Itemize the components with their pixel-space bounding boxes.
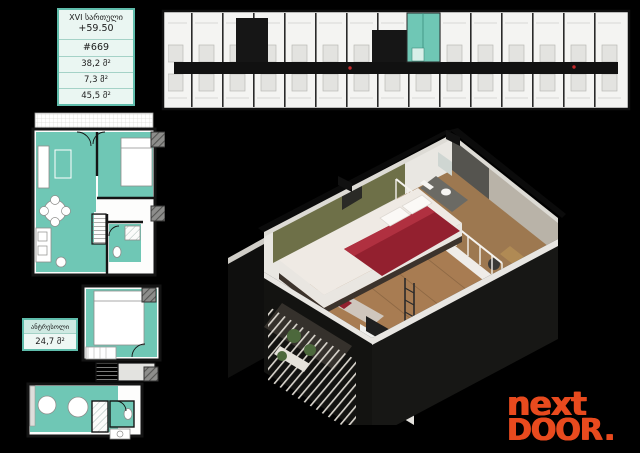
mezzanine-floor-plan	[20, 283, 165, 448]
apartment-3d-render	[222, 118, 578, 425]
poster-canvas: XVI სართული +59.50 #669 38,2 მ² 7,3 მ² 4…	[0, 0, 640, 453]
stair-core-2	[372, 30, 410, 62]
mezzanine-area: 24,7 მ²	[24, 333, 76, 349]
stair-core-1	[236, 18, 268, 62]
left-outer-wall	[228, 238, 264, 378]
bed	[121, 138, 152, 186]
main-floor-plan	[25, 110, 165, 285]
logo-door-text: DOOR	[507, 413, 602, 448]
mezz-rail-strip	[86, 347, 116, 359]
corridor-marker-dot	[348, 66, 351, 69]
area-value-1: 38,2 მ²	[59, 56, 133, 72]
shaft-1	[151, 132, 165, 147]
toilet-3d	[441, 189, 451, 196]
mezzanine-title: ანტრესოლი	[24, 320, 76, 333]
mezz-shaft-2	[144, 367, 158, 381]
highlighted-unit	[407, 13, 440, 62]
unit-number: #669	[59, 39, 133, 56]
mezz-shaft-1	[142, 288, 156, 302]
mezz-wardrobe	[30, 386, 35, 426]
skylight-1	[38, 396, 56, 414]
unit-info-box: XVI სართული +59.50 #669 38,2 მ² 7,3 მ² 4…	[57, 8, 135, 106]
area-value-2: 7,3 მ²	[59, 72, 133, 88]
shower	[125, 226, 140, 240]
mezzanine-label-box: ანტრესოლი 24,7 მ²	[22, 318, 78, 351]
shaft-2	[151, 206, 165, 221]
logo-line2: DOOR.	[507, 418, 617, 444]
corridor-marker-dot-2	[572, 65, 575, 68]
elevation-value: +59.50	[60, 23, 132, 35]
floor-label: XVI სართული	[60, 13, 132, 23]
logo-dot: .	[604, 418, 614, 444]
toilet	[113, 247, 121, 258]
hall	[92, 244, 106, 272]
mezz-toilet	[124, 409, 132, 420]
area-value-3: 45,5 მ²	[59, 88, 133, 104]
stairs	[92, 214, 106, 244]
balcony-plant-1	[287, 329, 301, 343]
washer	[56, 257, 66, 267]
mezz-bed	[94, 291, 144, 345]
mezz-sink	[110, 429, 130, 439]
brand-logo: next DOOR.	[507, 389, 617, 444]
corridor	[174, 62, 618, 74]
balcony-plant-3	[277, 351, 287, 361]
skylight-2	[68, 397, 88, 417]
sofa	[38, 146, 49, 188]
info-floor-row: XVI სართული +59.50	[59, 10, 133, 39]
balcony-plant-2	[304, 344, 316, 356]
building-key-plan	[160, 8, 632, 112]
mezz-stairs	[96, 363, 118, 381]
mezz-shower	[92, 401, 108, 432]
